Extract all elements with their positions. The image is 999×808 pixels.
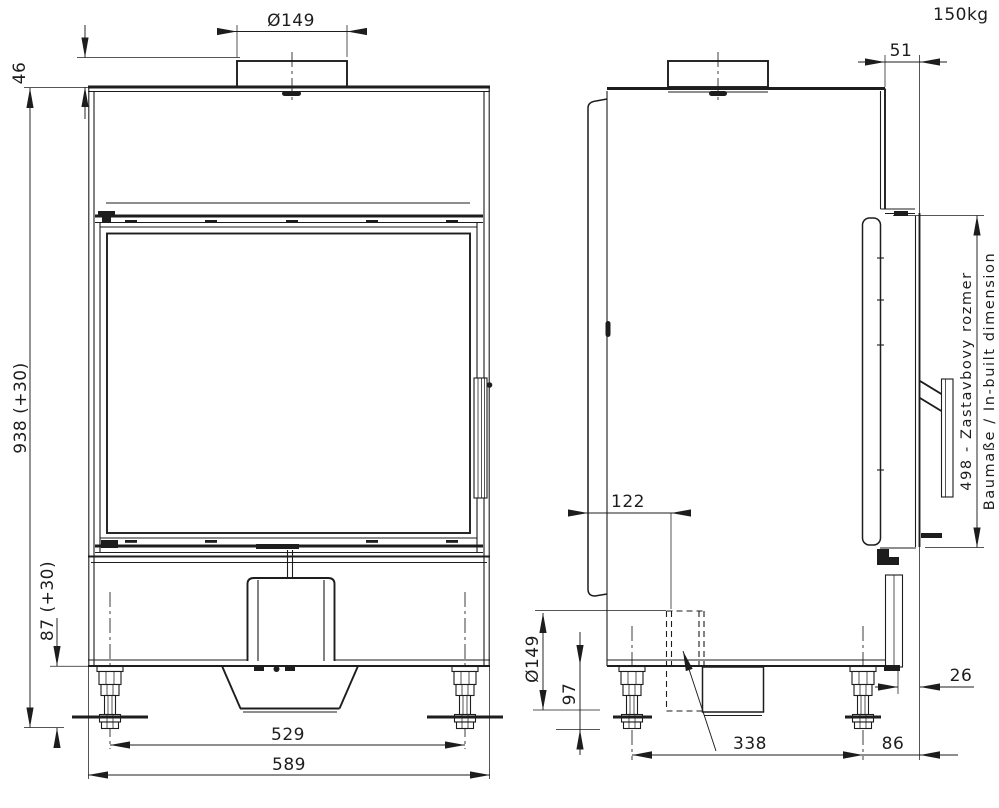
door-hinge-top [98,211,115,216]
dim-overall-height: 938 (+30) [11,362,31,454]
dim-inbuilt-height-de-en: Baumaße / In-built dimension [982,252,998,511]
intake-connector-box [703,667,764,712]
weight-note: 150kg [933,5,989,25]
dim-frame-projection: 51 [890,41,913,61]
dim-plinth-height: 87 (+30) [38,561,58,641]
dim-overall-width: 589 [272,755,306,775]
door-hinge-bottom [101,540,118,548]
fireplace-insert-drawing: Ø149 46 938 (+30) 87 (+30) 529 589 [0,0,999,808]
dim-feet-spacing-front: 529 [271,725,305,745]
dim-leg-height: 97 [560,683,580,706]
dim-feet-spacing-side: 338 [733,734,767,754]
dim-foot-to-front: 86 [882,734,905,754]
drawing-background [0,0,999,808]
air-control-box [248,578,335,661]
dim-collar-height: 46 [10,62,30,85]
technical-drawing-page: Ø149 46 938 (+30) 87 (+30) 529 589 [0,0,999,808]
dim-intake-diameter: Ø149 [523,635,543,683]
dim-inbuilt-height-sk: 498 - Zastavbovy rozmer [959,271,975,490]
door-latch [256,544,299,549]
dim-intake-offset: 122 [611,492,645,512]
back-flange [588,99,607,596]
dim-panel-gap: 26 [950,666,973,686]
dim-front-flue-diameter: Ø149 [267,11,315,31]
